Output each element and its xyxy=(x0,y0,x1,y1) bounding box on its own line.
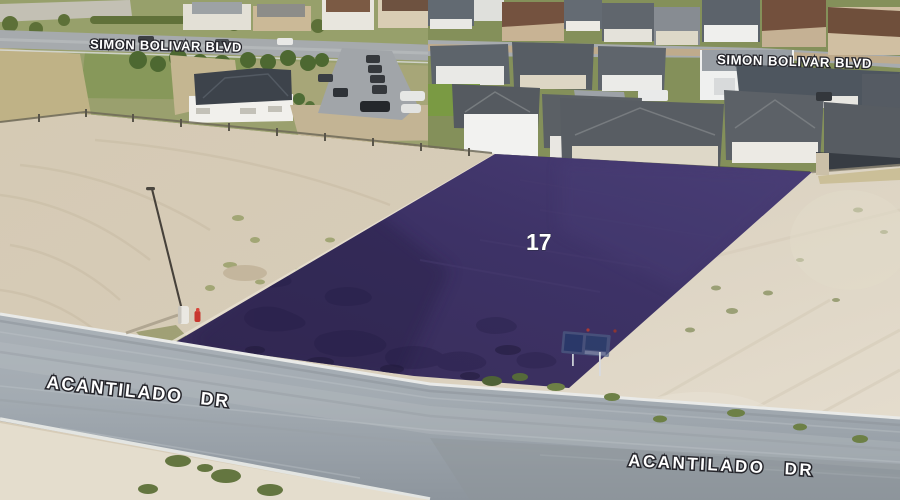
svg-text:17: 17 xyxy=(526,229,552,255)
svg-text:SIMON BOLIVAR BLVD: SIMON BOLIVAR BLVD xyxy=(90,37,242,55)
